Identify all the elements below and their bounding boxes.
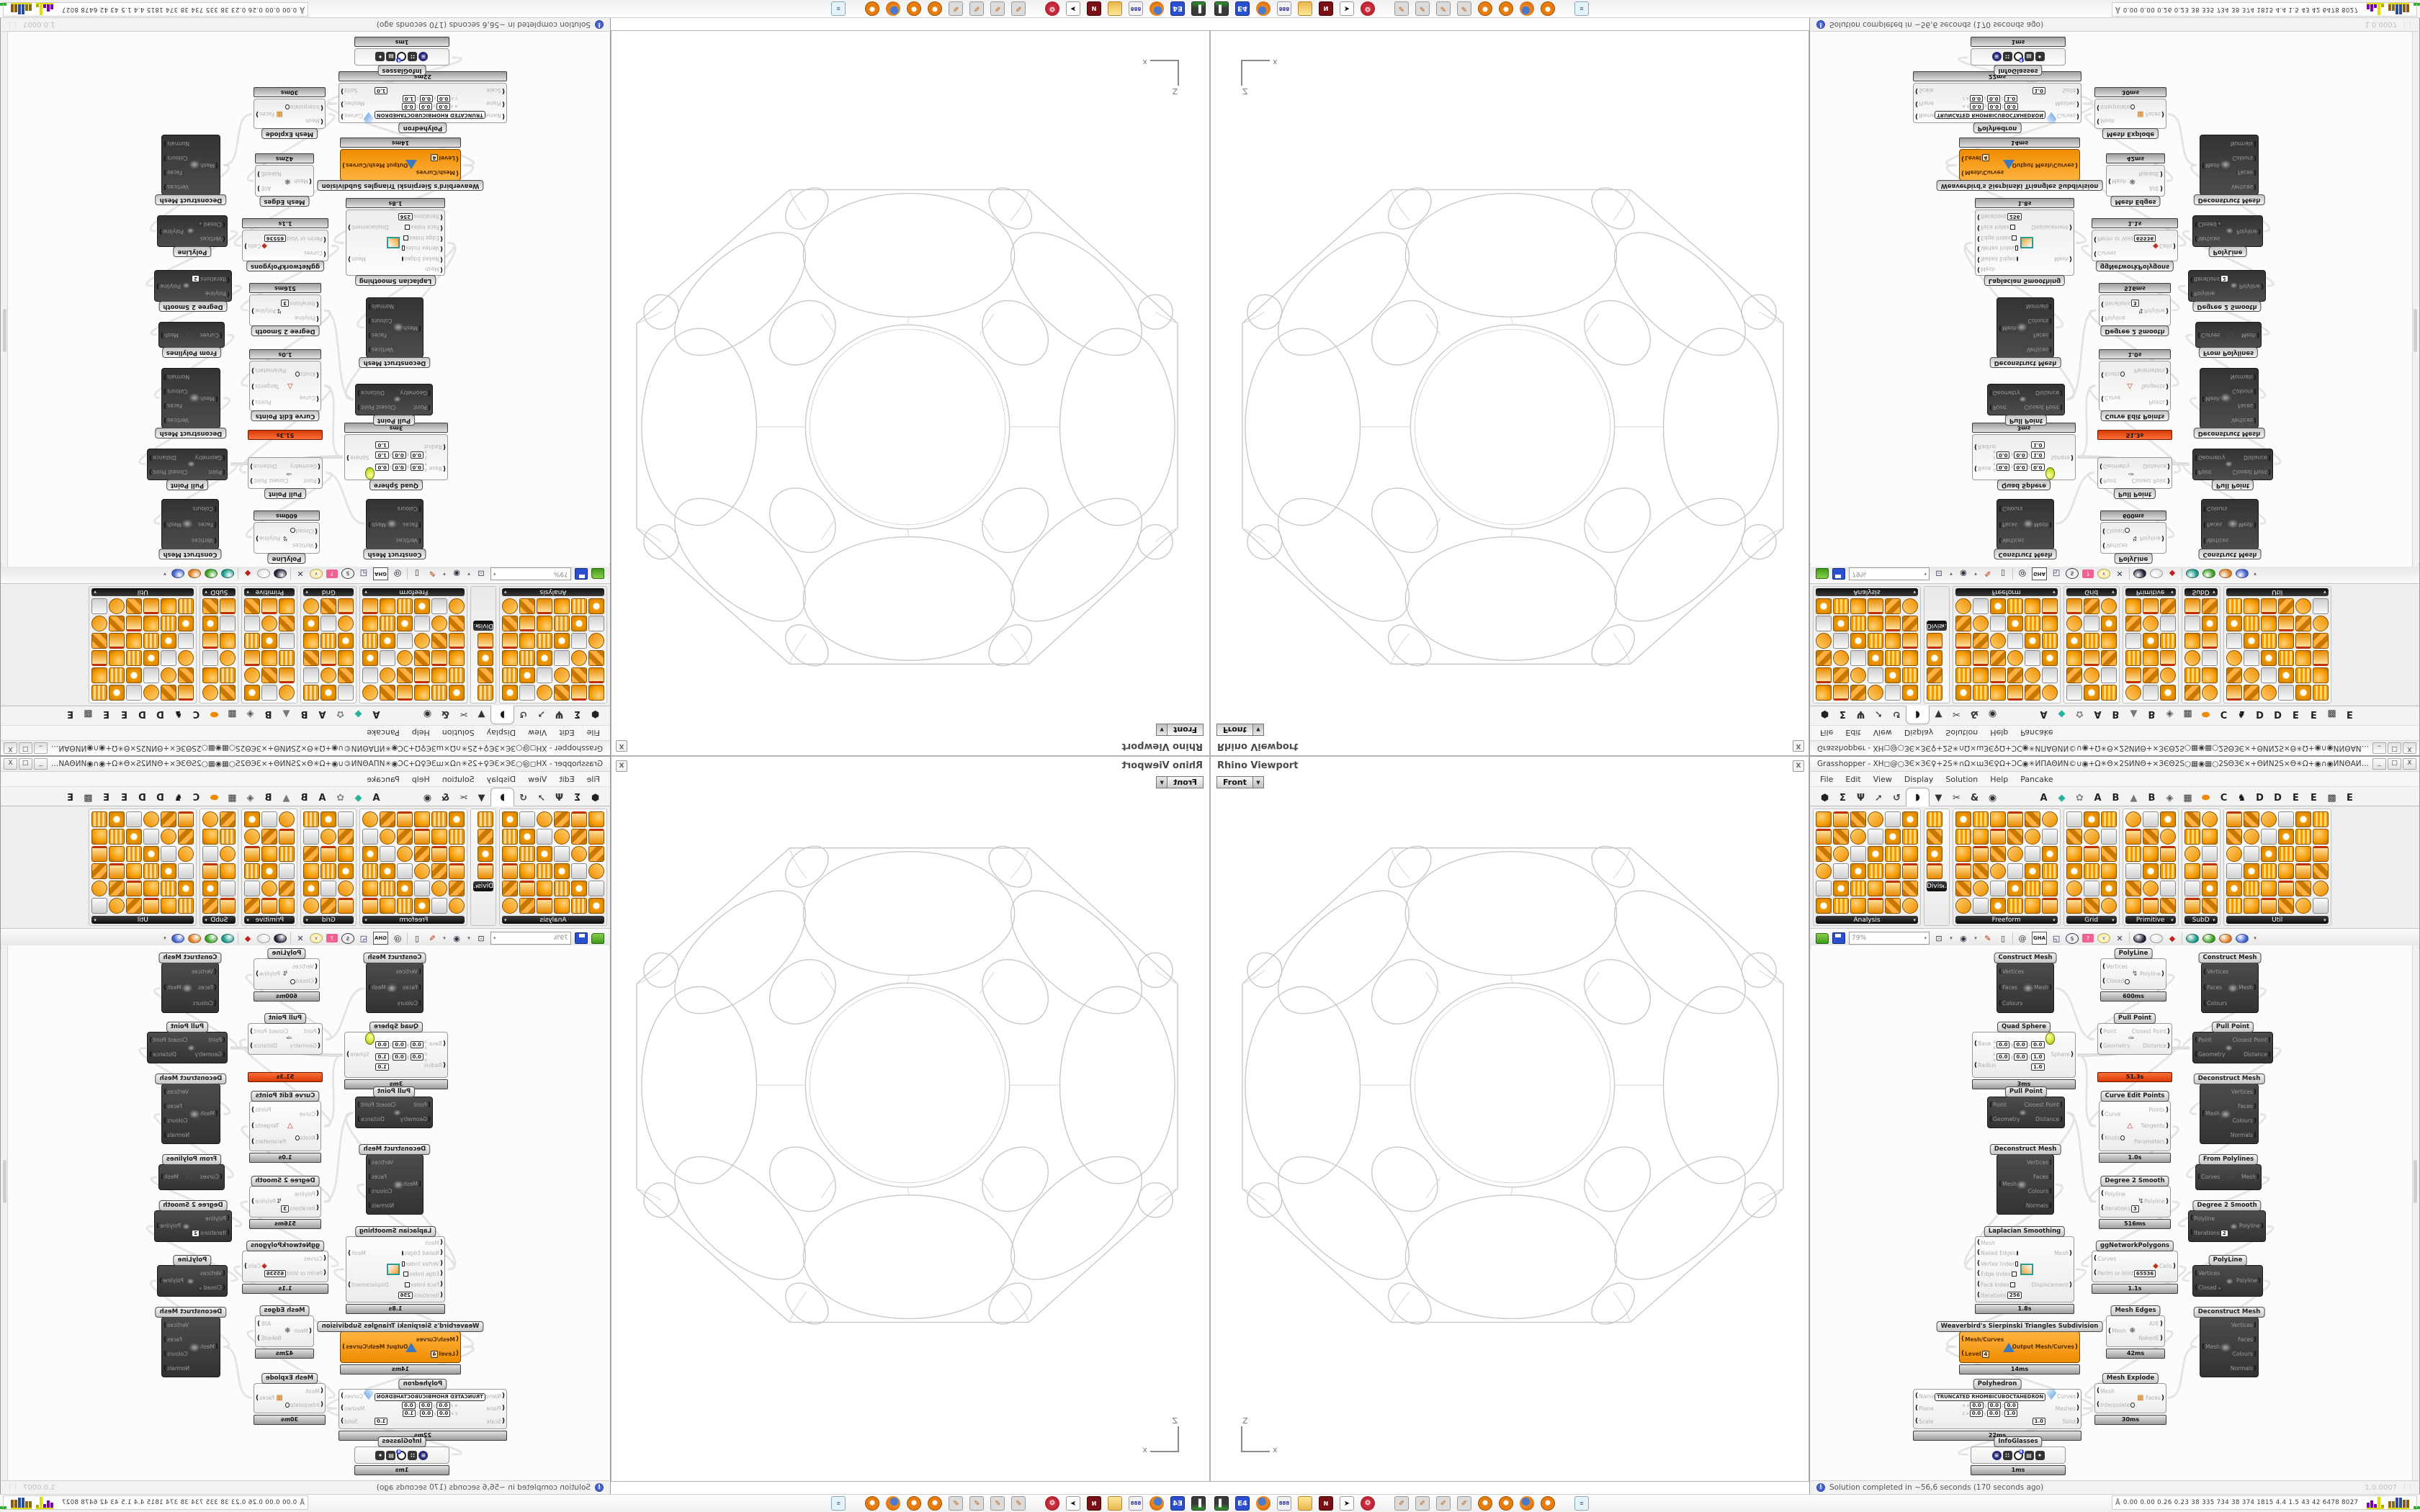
component-icon[interactable]	[2084, 633, 2099, 649]
component-icon[interactable]	[143, 685, 159, 701]
tab-plugin-shield[interactable]: ◈	[2161, 790, 2179, 806]
output-port[interactable]: AllE)	[257, 185, 282, 192]
output-port[interactable]: NakedE)	[2138, 1336, 2163, 1342]
component-icon[interactable]	[2084, 667, 2099, 683]
input-port[interactable]: (Faces	[1999, 521, 2020, 528]
component-icon[interactable]	[2261, 616, 2277, 631]
output-port[interactable]: Tangents)	[2135, 1123, 2169, 1130]
firefox-taskbar-icon[interactable]	[1149, 1496, 1164, 1511]
component-icon[interactable]	[321, 846, 336, 862]
component-icon[interactable]	[2278, 650, 2294, 666]
coordinate-value-box[interactable]: 0.0	[2014, 1053, 2027, 1061]
input-port[interactable]: (Polyline	[2101, 315, 2136, 321]
component-icon[interactable]	[2184, 650, 2200, 666]
toggle-circle[interactable]	[402, 1251, 403, 1256]
component-icon[interactable]	[2066, 811, 2082, 827]
component-icon[interactable]	[2066, 616, 2082, 631]
output-port[interactable]: Closest Point)	[2235, 469, 2271, 475]
component-icon[interactable]	[414, 863, 430, 879]
output-port[interactable]: AllE)	[2138, 185, 2163, 192]
component-icon[interactable]	[449, 863, 465, 879]
coordinate-value-box[interactable]: 1.0	[2031, 451, 2044, 459]
firefox-2-taskbar-icon[interactable]	[886, 1496, 900, 1511]
input-port[interactable]: (Mesh	[1999, 1182, 2014, 1188]
input-port[interactable]: (Mesh	[402, 266, 443, 272]
component-icon[interactable]	[2244, 811, 2259, 827]
input-port[interactable]: (Mesh	[1977, 1240, 2018, 1246]
component-icon[interactable]	[2295, 829, 2311, 845]
component-icon[interactable]	[220, 685, 236, 701]
balloon-orange-icon[interactable]	[2219, 570, 2232, 579]
component-icon[interactable]	[380, 633, 395, 649]
component-icon[interactable]	[537, 846, 552, 862]
component-icon[interactable]	[1885, 898, 1901, 914]
component-icon[interactable]	[1955, 811, 1971, 827]
value-box[interactable]: 4	[431, 1351, 439, 1358]
component-icon[interactable]	[502, 616, 518, 631]
calculator-taskbar-icon[interactable]: 888	[1277, 1, 1291, 16]
component-icon[interactable]	[2278, 881, 2294, 896]
component-icon[interactable]	[1885, 881, 1901, 896]
minimize-button[interactable]: _	[2372, 758, 2386, 770]
component-icon[interactable]	[502, 811, 518, 827]
output-port[interactable]: Vertices)	[2030, 346, 2052, 353]
galapagos-bulb-icon[interactable]: ∨	[2097, 569, 2110, 579]
component-icon[interactable]	[2278, 898, 2294, 914]
component-icon[interactable]	[2261, 685, 2277, 701]
component-icon[interactable]	[303, 598, 319, 614]
output-port[interactable]: Mesh)	[2035, 256, 2072, 262]
component-icon[interactable]	[1850, 829, 1866, 845]
preview-dropdown-icon[interactable]: ▾	[1973, 568, 1978, 580]
input-port[interactable]: (Knots	[295, 371, 319, 377]
component-icon[interactable]	[1990, 633, 2006, 649]
balloon-blue-icon[interactable]	[2236, 570, 2249, 579]
component-icon[interactable]	[2143, 811, 2159, 827]
output-port[interactable]: Closest Point)	[2029, 1102, 2063, 1109]
panel-dropdown-icon[interactable]: ▾	[2053, 590, 2056, 595]
resize-grip[interactable]: ⋮⋮	[2401, 1484, 2413, 1491]
node-pp1[interactable]: (Point(Geometry✑Closest Point)Distance)	[2097, 1023, 2172, 1055]
component-icon[interactable]	[2066, 863, 2082, 879]
component-icon[interactable]	[1955, 650, 1971, 666]
component-icon[interactable]	[2042, 667, 2058, 683]
output-port[interactable]: Cells)	[244, 1264, 259, 1270]
tab-params[interactable]: ⬢	[586, 790, 604, 806]
input-port[interactable]: (Mesh	[202, 1344, 218, 1351]
component-icon[interactable]	[502, 863, 518, 879]
output-port[interactable]: Vertices)	[163, 184, 187, 190]
output-port[interactable]: Faces)	[256, 1395, 274, 1402]
firefox-taskbar-icon[interactable]	[1256, 1, 1270, 16]
component-icon[interactable]	[1955, 863, 1971, 879]
component-icon[interactable]	[519, 598, 535, 614]
node-mex[interactable]: (Mesh(Interpolate▦Faces)	[254, 99, 326, 129]
component-icon[interactable]	[380, 898, 395, 914]
node-dml[interactable]: (MeshVertices)Faces)Colours)Normals)	[1996, 1154, 2054, 1215]
panel-dropdown-icon[interactable]: ▾	[364, 590, 367, 595]
input-port[interactable]: (Polyline	[192, 1215, 230, 1222]
input-port[interactable]: (Vertex Index	[402, 1261, 443, 1267]
folder-taskbar-icon[interactable]	[1108, 1, 1122, 16]
folder-taskbar-icon[interactable]	[1298, 1496, 1312, 1511]
menu-item-help[interactable]: Help	[1990, 775, 2008, 784]
component-icon[interactable]	[2202, 881, 2218, 896]
coordinate-value-box[interactable]: 0.0	[411, 1053, 423, 1061]
tab-plugin-b[interactable]: B	[259, 706, 277, 722]
viewport-close-button[interactable]: X	[616, 740, 627, 752]
component-icon[interactable]	[2025, 598, 2040, 614]
component-icon[interactable]	[478, 846, 493, 862]
output-port[interactable]: Meshes)	[2058, 100, 2079, 107]
input-port[interactable]: (Colours	[195, 505, 217, 512]
component-icon[interactable]	[397, 846, 413, 862]
node-pp1[interactable]: (Point(Geometry✑Closest Point)Distance)	[248, 1023, 323, 1055]
component-icon[interactable]	[380, 598, 395, 614]
input-port[interactable]: (Geometry	[2099, 463, 2126, 469]
component-icon[interactable]	[303, 811, 319, 827]
zoom-level-combobox[interactable]: 79%▾	[490, 932, 571, 945]
component-icon[interactable]	[2042, 881, 2058, 896]
output-port[interactable]: Faces)	[2030, 1174, 2052, 1181]
component-icon[interactable]	[2025, 846, 2040, 862]
output-port[interactable]: Vertices)	[2030, 1160, 2052, 1166]
calculator-taskbar-icon[interactable]: 888	[1129, 1, 1143, 16]
output-port[interactable]: Solid)	[341, 87, 362, 94]
component-icon[interactable]	[2101, 667, 2117, 683]
menu-item-edit[interactable]: Edit	[1845, 729, 1860, 738]
node-cm2[interactable]: (Vertices(Faces(ColoursMesh)	[2201, 963, 2259, 1013]
tab-plugin-flower[interactable]: ✿	[2071, 706, 2089, 722]
tab-plugin-e[interactable]: E	[2341, 706, 2359, 722]
zoom-level-combobox[interactable]: 79%▾	[490, 567, 571, 580]
component-icon[interactable]	[1833, 616, 1849, 631]
checkbox[interactable]	[2012, 235, 2017, 240]
input-port[interactable]: (Closed	[2195, 221, 2222, 228]
component-icon[interactable]	[109, 811, 125, 827]
balloon-dropdown-icon[interactable]: ▾	[162, 932, 168, 944]
tab-plugin-orange[interactable]: ⬬	[2197, 790, 2215, 806]
save-blue-taskbar-icon[interactable]: E4	[1235, 1, 1250, 16]
save-blue-taskbar-icon[interactable]: E4	[1235, 1496, 1250, 1511]
balloon-dropdown-icon[interactable]: ▾	[2252, 932, 2258, 944]
input-port[interactable]: (Geometry	[1989, 390, 2017, 396]
component-icon[interactable]	[244, 863, 260, 879]
output-port[interactable]: Mesh)	[2241, 1174, 2259, 1181]
balloon-orange-icon[interactable]	[188, 570, 201, 579]
component-icon[interactable]	[2226, 863, 2242, 879]
output-port[interactable]: Colours)	[163, 155, 187, 161]
output-port[interactable]: Faces)	[2146, 111, 2164, 117]
node-wb[interactable]: (Mesh/Curves(Level4Output Mesh/Curves)	[1959, 1331, 2080, 1363]
input-port[interactable]: (Faces	[1999, 985, 2020, 991]
output-port[interactable]: Distance)	[357, 390, 391, 396]
input-port[interactable]: (Curve	[2101, 1111, 2125, 1117]
input-port[interactable]: (Naked Edges	[1977, 1250, 2018, 1256]
gimp-1-taskbar-icon[interactable]: ✐	[1011, 1, 1026, 16]
component-icon[interactable]	[244, 846, 260, 862]
component-icon[interactable]	[414, 685, 430, 701]
close-button[interactable]: X	[4, 742, 17, 754]
component-icon[interactable]	[2042, 598, 2058, 614]
component-icon[interactable]	[338, 829, 354, 845]
component-icon[interactable]	[220, 846, 236, 862]
radius-value-box[interactable]: 1.0	[375, 1063, 388, 1071]
component-icon[interactable]	[431, 650, 447, 666]
tab-plugin-d[interactable]: D	[133, 706, 151, 722]
coordinate-value-box[interactable]: 0.0	[2014, 451, 2027, 459]
output-port[interactable]: Closest Point)	[2029, 404, 2063, 410]
node-me[interactable]: (Mesh❋AllE)NakedE)	[2106, 165, 2165, 197]
coordinate-value-box[interactable]: 1.0	[403, 95, 416, 102]
output-port[interactable]: Solid)	[2058, 87, 2079, 94]
checkbox[interactable]	[2015, 1261, 2017, 1266]
component-icon[interactable]	[2244, 846, 2259, 862]
arrow-black-taskbar-icon[interactable]: ➤	[1066, 1496, 1080, 1511]
input-port[interactable]: (Face Index	[1977, 1282, 2018, 1288]
canvas-scrollbar[interactable]	[1, 945, 8, 1482]
coordinate-value-box[interactable]: 0.0	[1987, 95, 2000, 102]
component-icon[interactable]	[303, 633, 319, 649]
input-port[interactable]: (Vertices	[1999, 969, 2020, 976]
tab-plugin-gem[interactable]: ◆	[2053, 706, 2071, 722]
component-icon[interactable]	[220, 650, 236, 666]
node-cm2[interactable]: (Vertices(Faces(ColoursMesh)	[2201, 499, 2259, 549]
component-icon[interactable]	[1990, 667, 2006, 683]
gimp-3-taskbar-icon[interactable]: ✐	[969, 1496, 984, 1511]
menu-item-display[interactable]: Display	[1904, 729, 1934, 738]
input-port[interactable]: (Mesh	[202, 162, 218, 168]
component-icon[interactable]	[1955, 685, 1971, 701]
component-icon[interactable]	[2066, 829, 2082, 845]
component-icon[interactable]	[1833, 811, 1849, 827]
output-port[interactable]: Faces)	[256, 111, 274, 117]
input-port[interactable]: (Geometry	[197, 454, 225, 461]
coordinate-value-box[interactable]: 1.0	[2004, 1410, 2017, 1417]
component-icon[interactable]	[1816, 598, 1832, 614]
firefox-2-taskbar-icon[interactable]	[1520, 1496, 1534, 1511]
coordinate-value-box[interactable]: 0.0	[420, 1410, 433, 1417]
input-port[interactable]: (Polyline	[284, 1191, 319, 1197]
component-icon[interactable]	[244, 650, 260, 666]
component-icon[interactable]	[109, 863, 125, 879]
firefox-taskbar-icon[interactable]	[1256, 1496, 1270, 1511]
output-port[interactable]: Faces)	[368, 1174, 390, 1181]
save-file-icon[interactable]	[575, 932, 588, 944]
tab-plugin-a[interactable]: A	[2035, 706, 2053, 722]
component-icon[interactable]	[109, 829, 125, 845]
component-icon[interactable]	[91, 667, 107, 683]
menu-item-view[interactable]: View	[528, 775, 547, 784]
component-icon[interactable]	[244, 598, 260, 614]
balloon-green-icon[interactable]	[2202, 570, 2215, 579]
tab-plugin-waffle[interactable]: ▦	[2179, 790, 2197, 806]
node-mex[interactable]: (Mesh(Interpolate▦Faces)	[2094, 99, 2166, 129]
component-icon[interactable]	[1990, 863, 2006, 879]
component-icon[interactable]	[2160, 881, 2176, 896]
component-icon[interactable]	[2007, 598, 2023, 614]
output-port[interactable]: Vertices)	[163, 417, 187, 423]
gha-loader-icon[interactable]: GHA	[373, 567, 388, 580]
tab-plugin-e[interactable]: E	[2287, 790, 2305, 806]
node-lap[interactable]: (Mesh(Naked Edges(Vertex Index(Edge Inde…	[346, 210, 445, 276]
coordinate-value-box[interactable]: 0.0	[393, 451, 405, 459]
component-icon[interactable]	[1973, 881, 1989, 896]
output-port[interactable]: Polyline)	[2146, 1199, 2169, 1205]
component-icon[interactable]	[2007, 616, 2023, 631]
ribbon-panel-label[interactable]: Freeform▾	[1955, 588, 2058, 596]
component-icon[interactable]	[321, 667, 336, 683]
component-icon[interactable]	[537, 667, 552, 683]
component-icon[interactable]	[2066, 846, 2082, 862]
component-icon[interactable]	[571, 811, 587, 827]
menu-item-file[interactable]: File	[1820, 775, 1833, 784]
component-icon[interactable]	[554, 881, 570, 896]
input-port[interactable]: (Vertices	[290, 964, 318, 971]
component-icon[interactable]	[1885, 863, 1901, 879]
component-icon[interactable]	[2313, 829, 2329, 845]
input-port[interactable]: (Point	[294, 1029, 321, 1035]
input-port[interactable]: (Polyline	[2190, 290, 2228, 297]
resize-grip[interactable]: ⋮⋮	[2401, 21, 2413, 28]
menu-item-edit[interactable]: Edit	[559, 729, 574, 738]
component-icon[interactable]	[126, 633, 142, 649]
tab-plugin-e[interactable]: E	[2287, 706, 2305, 722]
balloon-green-icon[interactable]	[205, 934, 218, 943]
component-icon[interactable]	[2101, 881, 2117, 896]
node-ggnp[interactable]: (Curves(Perim or Void65536◆Cells)	[2092, 230, 2178, 261]
component-icon[interactable]	[321, 598, 336, 614]
component-icon[interactable]	[1850, 811, 1866, 827]
component-icon[interactable]	[380, 829, 395, 845]
component-icon[interactable]	[91, 846, 107, 862]
output-port[interactable]: Polyline)	[251, 1199, 274, 1205]
component-icon[interactable]	[1850, 616, 1866, 631]
component-icon[interactable]	[449, 829, 465, 845]
component-icon[interactable]	[2066, 598, 2082, 614]
component-icon[interactable]	[2244, 829, 2259, 845]
component-icon[interactable]	[202, 898, 218, 914]
gimp-4-taskbar-icon[interactable]: ✐	[1457, 1496, 1471, 1511]
component-icon[interactable]	[1902, 685, 1918, 701]
input-port[interactable]: (Point	[403, 1102, 431, 1109]
viewport-view-tab[interactable]: Front ▼	[1156, 776, 1204, 788]
component-icon[interactable]	[414, 829, 430, 845]
canvas-scrollbar[interactable]	[1, 30, 8, 567]
component-icon[interactable]	[380, 616, 395, 631]
tab-plugin-shield[interactable]: ◈	[241, 790, 259, 806]
input-port[interactable]: (Edge Index	[402, 1271, 443, 1277]
component-icon[interactable]	[1850, 650, 1866, 666]
input-port[interactable]: (Iterations256	[402, 213, 443, 220]
tab-plugin-d[interactable]: D	[2269, 706, 2287, 722]
component-icon[interactable]	[1833, 598, 1849, 614]
component-icon[interactable]	[321, 829, 336, 845]
blender-3-taskbar-icon[interactable]	[865, 1, 879, 16]
component-icon[interactable]	[1902, 863, 1918, 879]
input-port[interactable]: (Mesh/Curves	[419, 1336, 459, 1343]
input-port[interactable]: (Scale	[1915, 1418, 1932, 1425]
input-port[interactable]: (Vertices	[2203, 537, 2225, 544]
open-file-icon[interactable]	[1816, 933, 1829, 944]
component-icon[interactable]	[588, 829, 604, 845]
component-icon[interactable]	[1885, 598, 1901, 614]
component-icon[interactable]	[554, 685, 570, 701]
checkbox[interactable]	[2010, 1282, 2015, 1287]
component-icon[interactable]	[478, 863, 493, 879]
component-icon[interactable]	[2313, 863, 2329, 879]
coordinate-value-box[interactable]: 0.0	[2014, 464, 2027, 471]
component-icon[interactable]	[502, 667, 518, 683]
panel-dropdown-icon[interactable]: ▾	[205, 917, 207, 923]
tab-plugin-dotgrid[interactable]: ▩	[2323, 706, 2341, 722]
output-port[interactable]: Faces)	[163, 402, 187, 409]
tab-surface[interactable]: ◗	[490, 706, 514, 724]
component-icon[interactable]	[2084, 829, 2099, 845]
node-qs[interactable]: (Base(Radiuso x0.0y0.0z0.0z x0.0y0.0z1.0…	[1972, 434, 2076, 480]
component-icon[interactable]	[588, 846, 604, 862]
component-icon[interactable]	[2202, 633, 2218, 649]
component-icon[interactable]	[2261, 881, 2277, 896]
folder-taskbar-icon[interactable]	[1298, 1, 1312, 16]
component-icon[interactable]	[2042, 898, 2058, 914]
component-icon[interactable]	[126, 650, 142, 666]
component-icon[interactable]	[1990, 685, 2006, 701]
input-port[interactable]: (Vertex Index	[1977, 1261, 2018, 1267]
zoom-extents-icon[interactable]: ⊡	[475, 932, 487, 944]
component-icon[interactable]	[2042, 650, 2058, 666]
input-port[interactable]: (Perim or Void65536	[269, 235, 326, 242]
tab-plugin-b[interactable]: B	[259, 790, 277, 806]
coordinate-value-box[interactable]: 0.0	[1970, 1402, 1983, 1409]
component-icon[interactable]	[2125, 881, 2141, 896]
value-box[interactable]: 2	[192, 1230, 200, 1237]
coordinate-value-box[interactable]: 0.0	[1987, 1410, 2000, 1417]
output-port[interactable]: Mesh)	[163, 521, 179, 528]
component-icon[interactable]	[2313, 811, 2329, 827]
tab-plugin-d[interactable]: D	[2251, 706, 2269, 722]
component-icon[interactable]	[519, 667, 535, 683]
component-icon[interactable]	[2101, 846, 2117, 862]
node-pp2[interactable]: (Point(GeometryClosest Point)Distance)	[355, 384, 433, 415]
input-port[interactable]: (Curves	[2094, 1256, 2151, 1262]
component-icon[interactable]	[261, 685, 277, 701]
component-icon[interactable]	[321, 650, 336, 666]
component-icon[interactable]	[397, 616, 413, 631]
ribbon-panel-label[interactable]: Util▾	[91, 588, 194, 596]
component-icon[interactable]	[537, 685, 552, 701]
input-port[interactable]: (Faces	[2203, 521, 2225, 528]
sketch-pen-icon[interactable]: ✎	[1982, 568, 1994, 580]
output-port[interactable]: Meshes)	[341, 1405, 362, 1412]
balloon-green-icon[interactable]	[2202, 934, 2215, 943]
tab-plugin-flower[interactable]: ✿	[331, 790, 349, 806]
component-icon[interactable]	[1816, 650, 1832, 666]
coordinate-value-box[interactable]: 0.0	[437, 95, 450, 102]
component-icon[interactable]	[2261, 811, 2277, 827]
component-icon[interactable]	[478, 667, 493, 683]
arrow-black-taskbar-icon[interactable]: ➤	[1340, 1496, 1354, 1511]
component-icon[interactable]	[2202, 598, 2218, 614]
remote-panel-icon[interactable]: @	[392, 932, 403, 944]
input-port[interactable]: (Point	[1989, 404, 2017, 410]
tab-plugin-a[interactable]: A	[367, 706, 385, 722]
component-icon[interactable]	[1885, 616, 1901, 631]
component-icon[interactable]	[220, 598, 236, 614]
balloon-dark-icon[interactable]	[2133, 570, 2146, 579]
component-icon[interactable]	[537, 616, 552, 631]
component-icon[interactable]	[571, 685, 587, 701]
